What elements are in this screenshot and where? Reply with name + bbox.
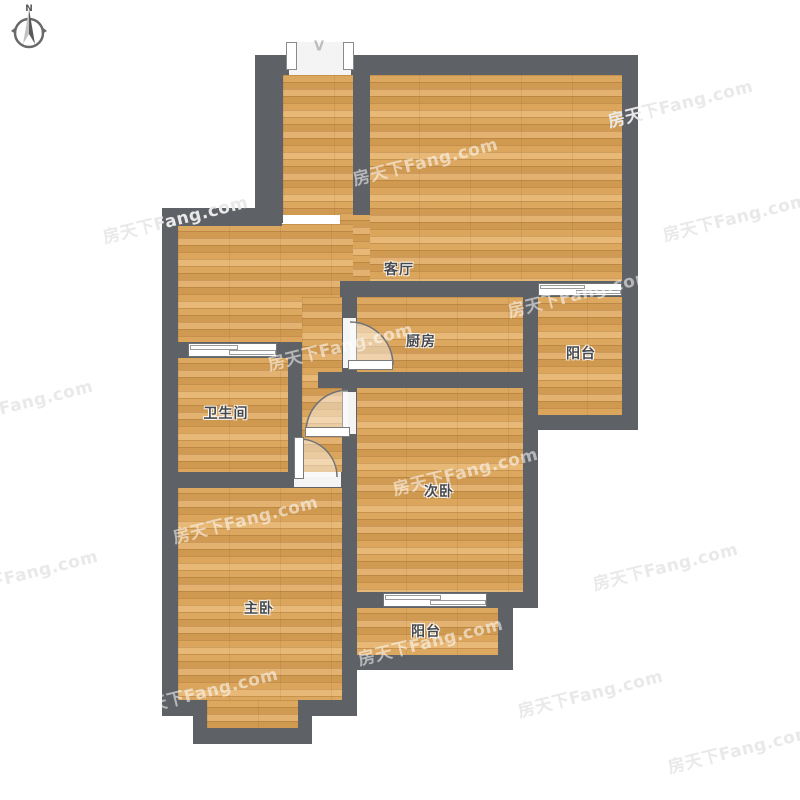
master-bedroom-label: 主卧: [244, 598, 274, 618]
compass-icon: N: [6, 0, 54, 60]
floor-plan: V 客厅 厨房 阳台 卫生间 次卧 主卧 阳台 N 房天下Fang.com 房天…: [0, 0, 800, 800]
bathroom-door-leaf: [294, 437, 304, 479]
compass-needle-light: [23, 9, 29, 44]
door-arcs-overlay: [0, 0, 800, 800]
kitchen-label: 厨房: [406, 331, 436, 351]
second-bedroom-door-leaf: [305, 427, 350, 437]
balcony-bottom-label: 阳台: [411, 621, 441, 641]
kitchen-door-leaf: [348, 360, 393, 370]
compass-arrow-west: [11, 26, 17, 34]
compass-needle-dark: [29, 9, 35, 44]
second-bedroom-label: 次卧: [424, 481, 454, 501]
bathroom-label: 卫生间: [204, 403, 249, 423]
balcony-right-label: 阳台: [566, 343, 596, 363]
compass-arrow-east: [41, 26, 47, 34]
living-room-label: 客厅: [384, 259, 414, 279]
